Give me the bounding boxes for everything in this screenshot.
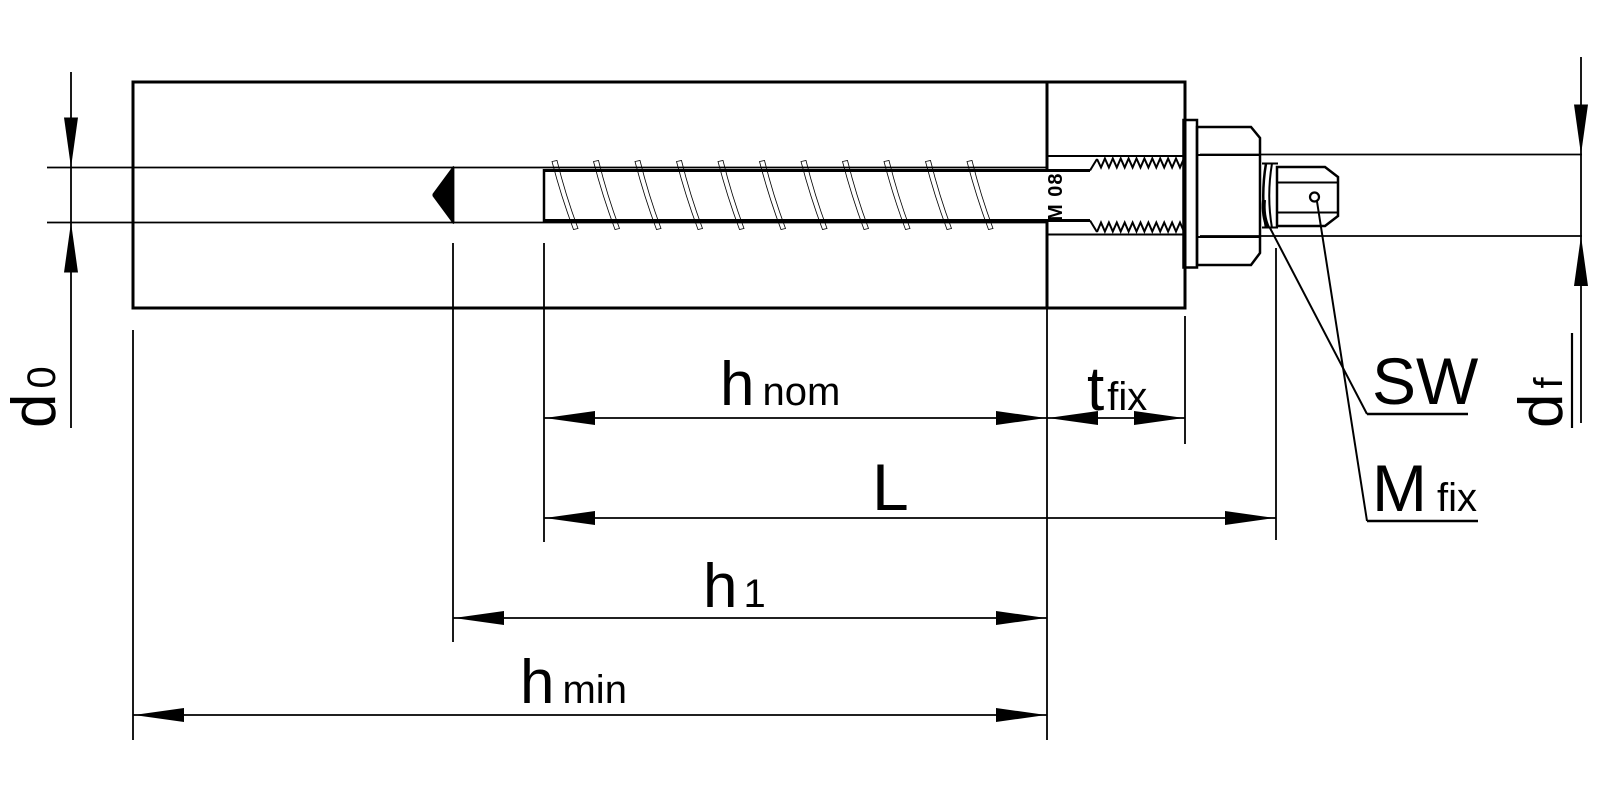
- label-h-min: hmin: [520, 648, 627, 717]
- label-t-fix: tfix: [1087, 355, 1147, 424]
- label-d0: d0: [0, 366, 69, 428]
- anchor-installation-diagram: hnom tfix L h1 hmin d0 df SW Mfix M 08: [0, 0, 1600, 800]
- label-M-fix: Mfix: [1372, 451, 1477, 525]
- washer-nut-assembly: [1184, 120, 1583, 268]
- label-L: L: [872, 450, 909, 524]
- label-SW: SW: [1372, 344, 1479, 418]
- label-h1: h1: [703, 552, 766, 621]
- anchor-screw: [544, 159, 1184, 233]
- technical-drawing-page: hnom tfix L h1 hmin d0 df SW Mfix M 08: [0, 0, 1600, 800]
- screw-size-marking: M 08: [1045, 173, 1067, 221]
- dimension-labels: hnom tfix L h1 hmin d0 df SW Mfix M 08: [0, 173, 1576, 717]
- label-d-f: df: [1507, 377, 1576, 428]
- label-h-nom: hnom: [720, 350, 840, 419]
